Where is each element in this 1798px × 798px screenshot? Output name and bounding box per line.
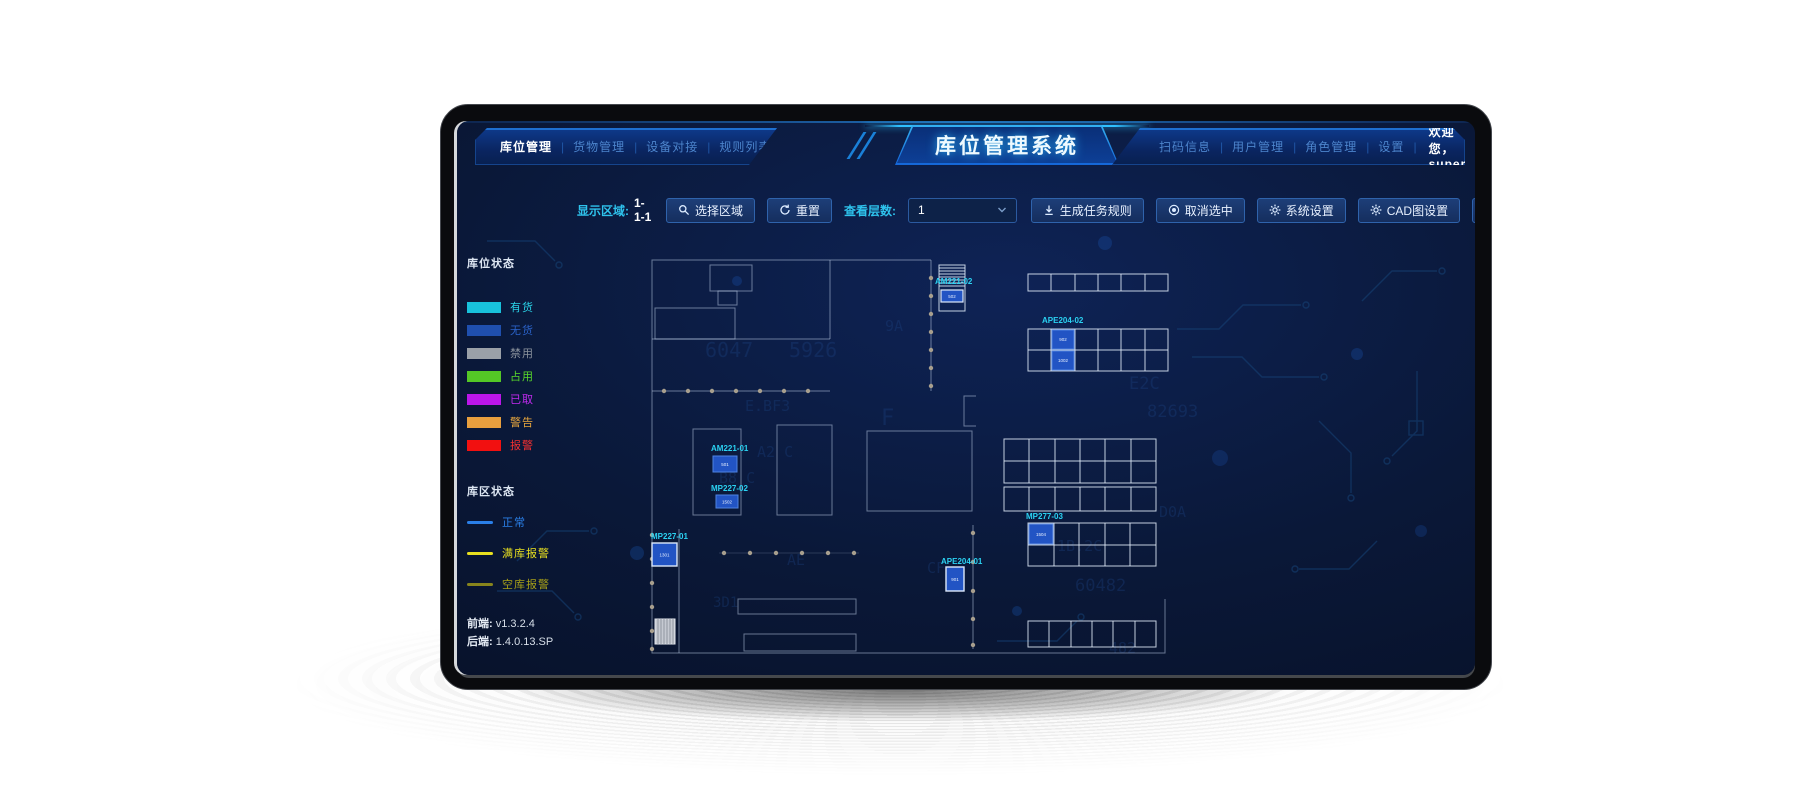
layers-label: 查看层数: — [844, 202, 896, 219]
page: 6047 5926 E.BF3 A2 C B8 C 9A E2C 82693 1… — [0, 0, 1798, 798]
cad-settings-button[interactable]: CAD图设置 — [1358, 198, 1460, 223]
nav-item-goods-management[interactable]: 货物管理 — [564, 138, 634, 155]
title-banner: 库位管理系统 — [887, 121, 1127, 168]
legend-item-taken: 已取 — [467, 391, 597, 407]
station-label-ape204-02: APE204-02 — [1042, 316, 1084, 325]
reset-button[interactable]: 重置 — [767, 198, 832, 223]
download-icon — [1043, 204, 1055, 216]
layers-select[interactable]: 1 — [908, 198, 1017, 223]
zone-line-swatch — [467, 521, 493, 524]
status-swatch — [467, 325, 501, 336]
conveyor-dots — [650, 276, 975, 651]
system-settings-button[interactable]: 系统设置 — [1257, 198, 1346, 223]
station-label-mp227-02: MP227-02 — [711, 484, 748, 493]
status-swatch — [467, 371, 501, 382]
svg-text:1301: 1301 — [659, 553, 670, 558]
highlighted-cells: 502 902 1002 501 1502 1301 901 1504 — [652, 290, 1074, 591]
fisheye-icon — [1168, 204, 1180, 216]
hatched-block — [655, 619, 675, 644]
legend-item-occupied: 占用 — [467, 368, 597, 384]
select-area-button[interactable]: 选择区域 — [666, 198, 755, 223]
status-swatch — [467, 348, 501, 359]
nav-item-slot-management[interactable]: 库位管理 — [491, 138, 561, 155]
zone-status-title: 库区状态 — [467, 483, 597, 499]
nav-item-user-management[interactable]: 用户管理 — [1223, 138, 1293, 155]
app-title: 库位管理系统 — [935, 130, 1079, 160]
status-swatch — [467, 417, 501, 428]
status-swatch — [467, 302, 501, 313]
station-label-am221-01: AM221-01 — [711, 444, 749, 453]
legend-item-no-goods: 无货 — [467, 322, 597, 338]
svg-text:1502: 1502 — [722, 500, 733, 505]
svg-text:501: 501 — [721, 462, 729, 467]
legend-panel: 库位状态 有货 无货 禁用 — [467, 255, 597, 592]
station-label-ape204-01: APE204-01 — [941, 557, 983, 566]
nav-item-device-docking[interactable]: 设备对接 — [637, 138, 707, 155]
svg-text:901: 901 — [951, 577, 959, 582]
nav-separator: | — [780, 140, 783, 154]
warehouse-floorplan: 502 902 1002 501 1502 1301 901 1504 — [649, 257, 1169, 657]
rack-am221-02-vertical — [939, 265, 965, 311]
toolbar: 显示区域: 1-1-1 选择区域 重置 查 — [577, 197, 1475, 223]
zone-line-swatch — [467, 583, 493, 586]
magnifier-icon — [678, 204, 690, 216]
decor-slashes-left — [855, 132, 868, 159]
user-welcome[interactable]: 欢迎您，super — [1417, 123, 1467, 171]
status-swatch — [467, 440, 501, 451]
display-area-label: 显示区域: — [577, 202, 629, 219]
nav-item-settings[interactable]: 设置 — [1369, 138, 1413, 155]
refresh-icon — [779, 204, 791, 216]
generate-task-rule-button[interactable]: 生成任务规则 — [1031, 198, 1144, 223]
version-info: 前端: v1.3.2.4 后端: 1.4.0.13.SP — [467, 615, 553, 651]
legend-zone-empty-alarm: 空库报警 — [467, 576, 597, 592]
rack-top-row — [1028, 274, 1168, 291]
title-plate-border: 库位管理系统 — [895, 125, 1119, 165]
nav-item-rule-list[interactable]: 规则列表 — [710, 138, 780, 155]
rack-mid-grid-a — [1004, 439, 1156, 483]
rack-mid-grid-b — [1004, 487, 1156, 511]
frontend-version: 前端: v1.3.2.4 — [467, 615, 553, 633]
gear-icon — [1370, 204, 1382, 216]
nav-item-task-list[interactable]: 任务列表 — [784, 138, 854, 155]
right-nav-bar: 扫码信息 | 用户管理 | 角色管理 | 设置 | 欢迎您，super ▼ — [1112, 128, 1465, 165]
zone-line-swatch — [467, 552, 493, 555]
station-label-mp277-03: MP277-03 — [1026, 512, 1063, 521]
legend-zone-full-alarm: 满库报警 — [467, 545, 597, 561]
upload-file-button[interactable]: 上传文件 — [1472, 198, 1475, 223]
left-nav-bar: 库位管理 | 货物管理 | 设备对接 | 规则列表 | 任务列表 — [475, 128, 777, 165]
legend-item-has-goods: 有货 — [467, 299, 597, 315]
station-labels: AM221-02 APE204-02 AM221-01 MP227-02 MP2… — [651, 277, 1084, 566]
display-area-group: 显示区域: 1-1-1 — [577, 196, 654, 224]
svg-text:1002: 1002 — [1058, 358, 1069, 363]
rack-ape204-02 — [1028, 329, 1168, 371]
station-label-mp227-01: MP227-01 — [651, 532, 688, 541]
svg-text:502: 502 — [948, 294, 956, 299]
legend-item-alarm: 报警 — [467, 437, 597, 453]
display-area-value: 1-1-1 — [634, 196, 654, 224]
chevron-down-icon — [997, 206, 1007, 214]
legend-zone-normal: 正常 — [467, 514, 597, 530]
svg-text:902: 902 — [1059, 337, 1067, 342]
rack-bottom-row — [1028, 621, 1156, 647]
legend-item-warning: 警告 — [467, 414, 597, 430]
device-frame: 6047 5926 E.BF3 A2 C B8 C 9A E2C 82693 1… — [440, 104, 1492, 690]
cancel-selected-button[interactable]: 取消选中 — [1156, 198, 1245, 223]
status-swatch — [467, 394, 501, 405]
gear-icon — [1269, 204, 1281, 216]
nav-item-scan-info[interactable]: 扫码信息 — [1150, 138, 1220, 155]
svg-text:1504: 1504 — [1036, 532, 1047, 537]
slot-status-title: 库位状态 — [467, 255, 597, 271]
backend-version: 后端: 1.4.0.13.SP — [467, 633, 553, 651]
station-label-am221-02: AM221-02 — [935, 277, 973, 286]
nav-item-role-management[interactable]: 角色管理 — [1296, 138, 1366, 155]
legend-item-disabled: 禁用 — [467, 345, 597, 361]
layers-value: 1 — [918, 203, 925, 217]
app-screen: 6047 5926 E.BF3 A2 C B8 C 9A E2C 82693 1… — [457, 121, 1475, 675]
